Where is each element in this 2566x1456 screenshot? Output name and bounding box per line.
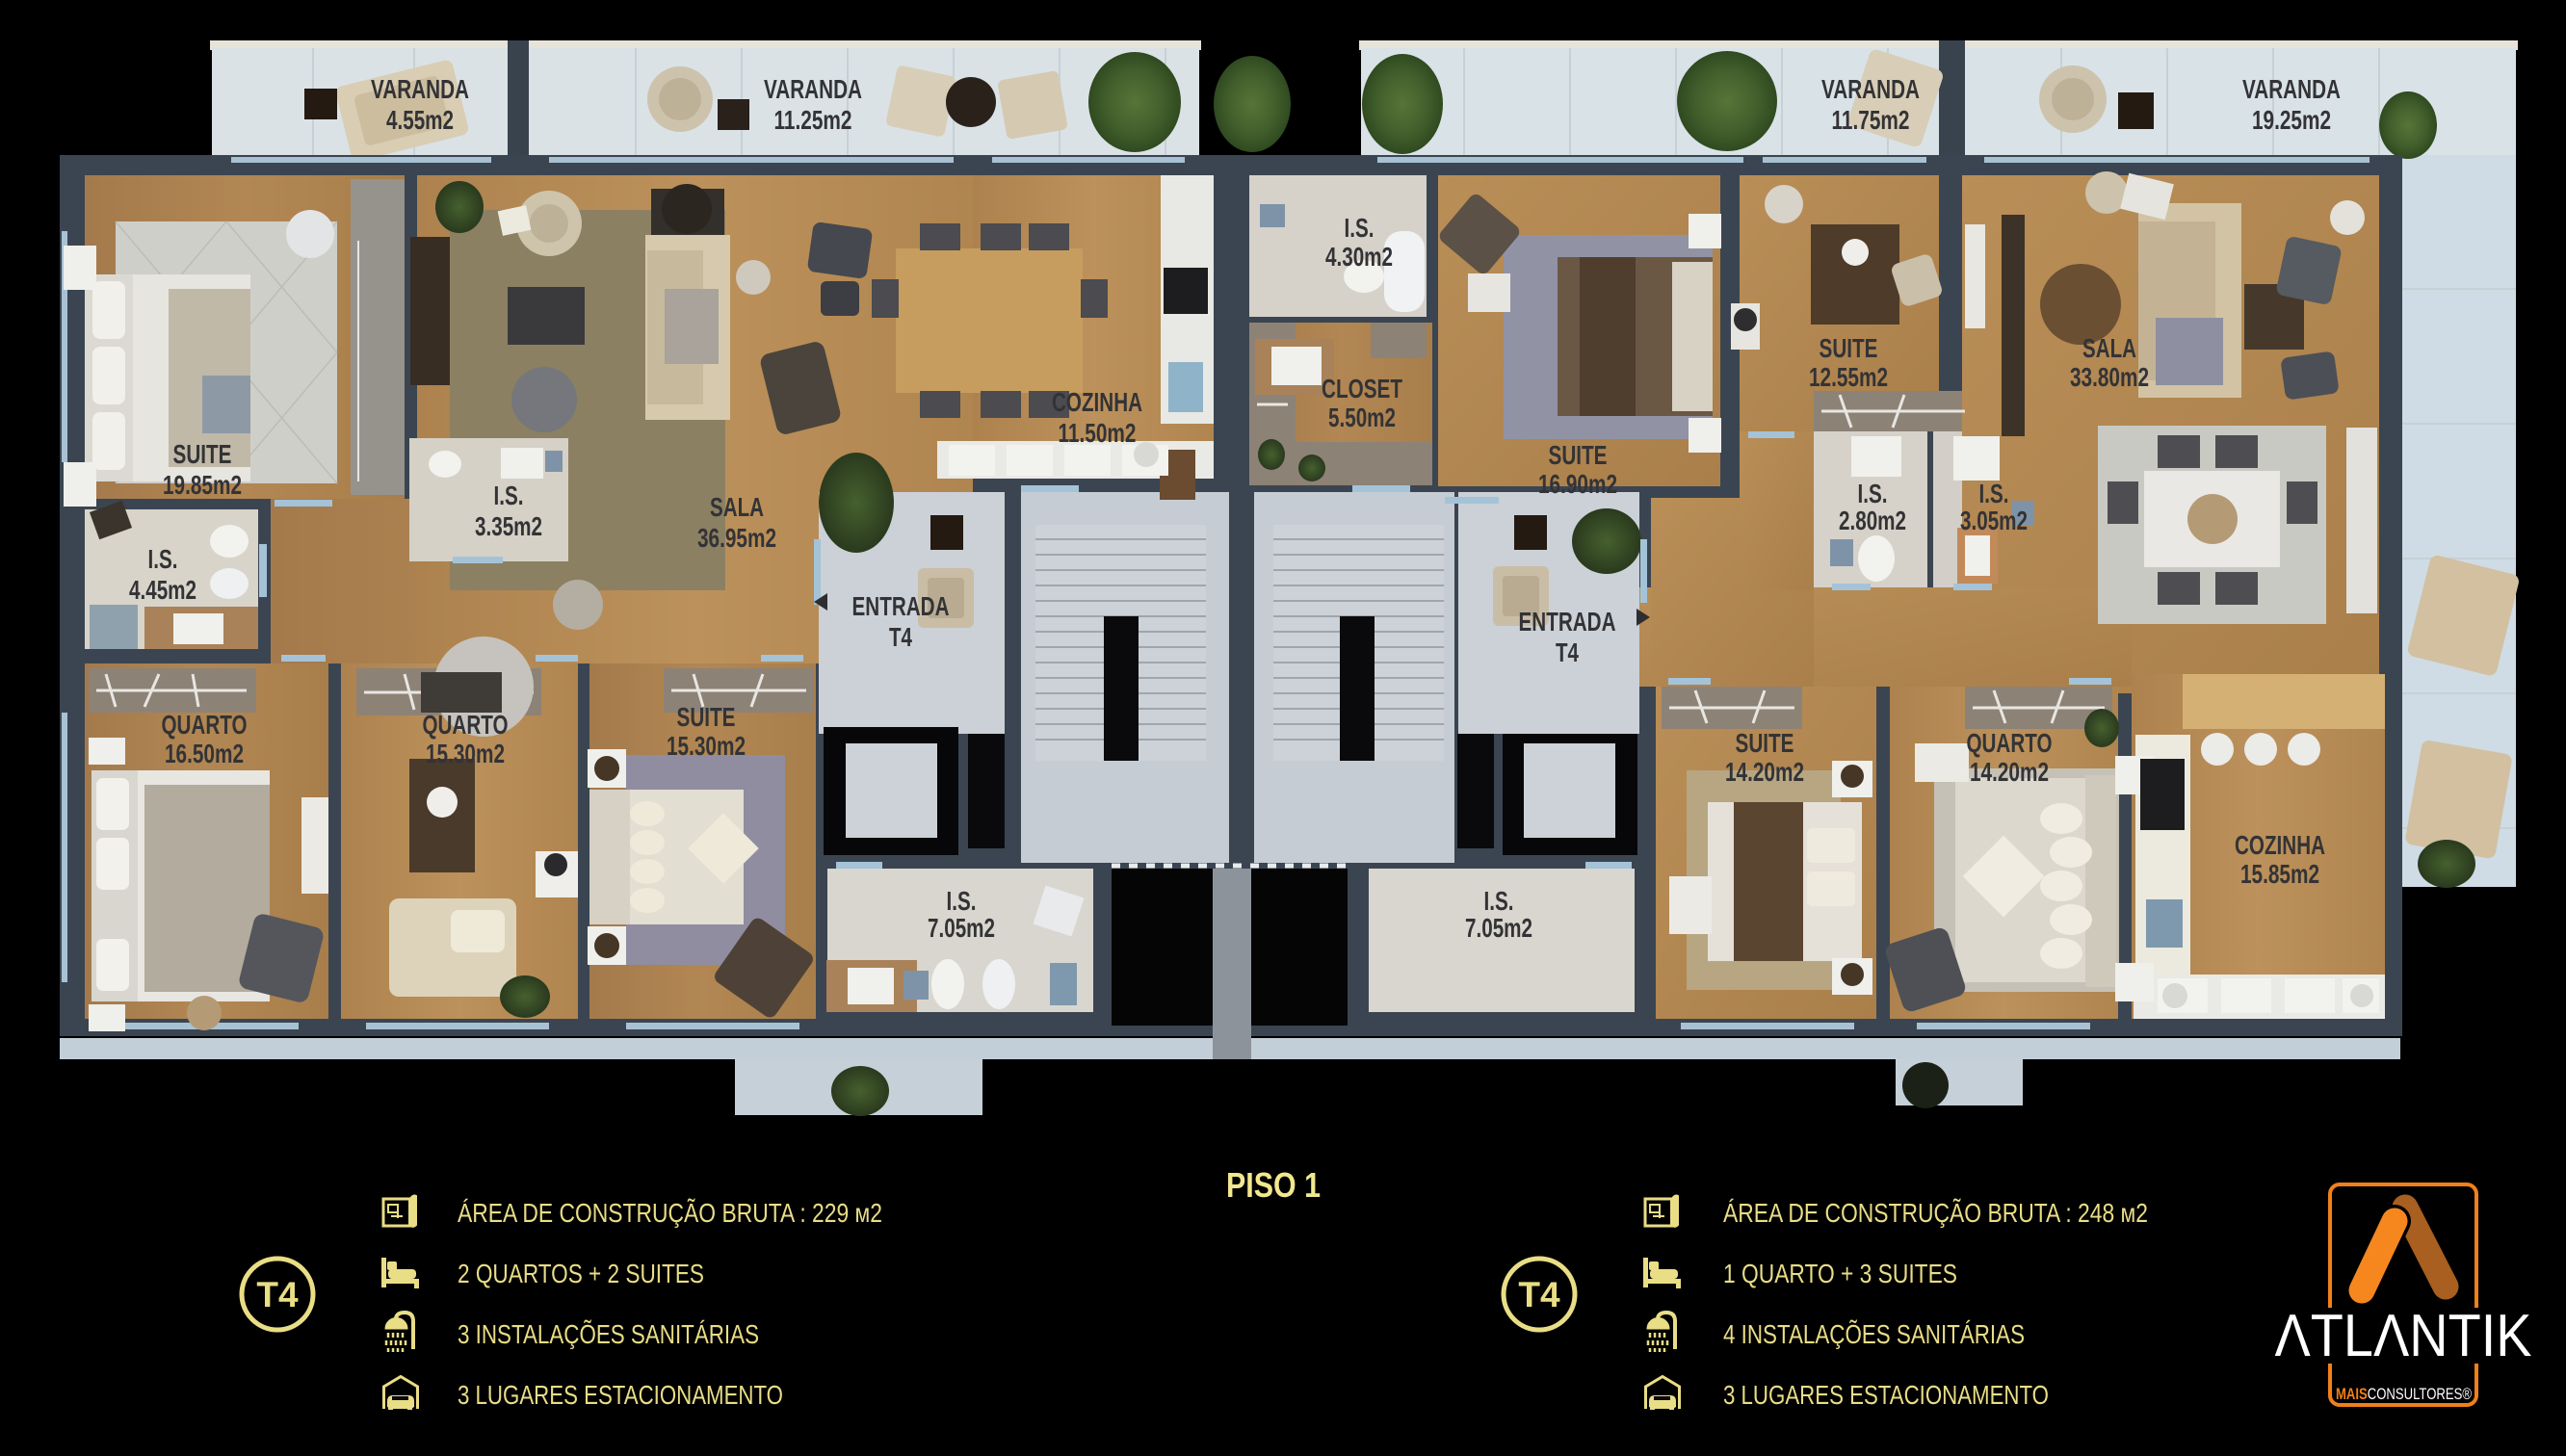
svg-text:T4: T4 bbox=[1556, 637, 1579, 667]
svg-text:I.S.: I.S. bbox=[1979, 479, 2009, 508]
svg-text:14.20m2: 14.20m2 bbox=[1725, 757, 1804, 787]
svg-text:COZINHA: COZINHA bbox=[1052, 387, 1142, 417]
svg-text:I.S.: I.S. bbox=[1484, 886, 1514, 916]
svg-text:12.55m2: 12.55m2 bbox=[1809, 362, 1888, 392]
svg-text:33.80m2: 33.80m2 bbox=[2070, 362, 2149, 392]
svg-text:4 INSTALAÇÕES SANITÁRIAS: 4 INSTALAÇÕES SANITÁRIAS bbox=[1723, 1319, 2025, 1349]
svg-text:15.85m2: 15.85m2 bbox=[2240, 859, 2319, 889]
svg-text:PISO 1: PISO 1 bbox=[1226, 1165, 1321, 1205]
svg-text:36.95m2: 36.95m2 bbox=[697, 523, 776, 553]
svg-text:QUARTO: QUARTO bbox=[1967, 728, 2053, 758]
svg-text:QUARTO: QUARTO bbox=[423, 710, 509, 740]
svg-text:5.50m2: 5.50m2 bbox=[1328, 403, 1396, 432]
svg-text:ÁREA DE CONSTRUÇÃO BRUTA : 22: ÁREA DE CONSTRUÇÃO BRUTA : 229 м2 bbox=[458, 1198, 882, 1228]
svg-text:16.90m2: 16.90m2 bbox=[1538, 469, 1617, 499]
svg-text:2 QUARTOS + 2 SUITES: 2 QUARTOS + 2 SUITES bbox=[458, 1259, 704, 1288]
svg-text:11.50m2: 11.50m2 bbox=[1059, 418, 1137, 448]
svg-text:16.50m2: 16.50m2 bbox=[165, 739, 244, 768]
svg-text:QUARTO: QUARTO bbox=[162, 710, 248, 740]
svg-text:15.30m2: 15.30m2 bbox=[426, 739, 505, 768]
svg-text:VARANDA: VARANDA bbox=[1821, 74, 1920, 104]
svg-text:15.30m2: 15.30m2 bbox=[667, 731, 746, 761]
svg-text:3 LUGARES ESTACIONAMENTO: 3 LUGARES ESTACIONAMENTO bbox=[458, 1380, 783, 1410]
svg-text:3 INSTALAÇÕES SANITÁRIAS: 3 INSTALAÇÕES SANITÁRIAS bbox=[458, 1319, 759, 1349]
svg-text:I.S.: I.S. bbox=[947, 886, 977, 916]
svg-text:VARANDA: VARANDA bbox=[371, 74, 469, 104]
svg-text:19.85m2: 19.85m2 bbox=[163, 470, 242, 500]
svg-text:I.S.: I.S. bbox=[1345, 213, 1375, 243]
svg-text:19.25m2: 19.25m2 bbox=[2252, 105, 2331, 135]
svg-text:3.05m2: 3.05m2 bbox=[1960, 506, 2028, 535]
svg-text:11.75m2: 11.75m2 bbox=[1832, 105, 1910, 135]
svg-text:SUITE: SUITE bbox=[1549, 440, 1608, 470]
svg-text:2.80m2: 2.80m2 bbox=[1839, 506, 1906, 535]
svg-text:SUITE: SUITE bbox=[1736, 728, 1794, 758]
svg-text:T4: T4 bbox=[889, 622, 912, 652]
svg-text:I.S.: I.S. bbox=[148, 544, 178, 574]
svg-text:4.55m2: 4.55m2 bbox=[386, 105, 454, 135]
svg-text:11.25m2: 11.25m2 bbox=[774, 105, 852, 135]
svg-text:4.45m2: 4.45m2 bbox=[129, 575, 196, 605]
svg-text:CLOSET: CLOSET bbox=[1322, 374, 1402, 403]
svg-text:VARANDA: VARANDA bbox=[2242, 74, 2341, 104]
svg-text:ENTRADA: ENTRADA bbox=[852, 591, 950, 621]
svg-text:SUITE: SUITE bbox=[1820, 333, 1878, 363]
svg-text:COZINHA: COZINHA bbox=[2235, 830, 2325, 860]
svg-text:4.30m2: 4.30m2 bbox=[1325, 242, 1393, 272]
svg-text:ÁREA DE CONSTRUÇÃO BRUTA : 24: ÁREA DE CONSTRUÇÃO BRUTA : 248 м2 bbox=[1723, 1198, 2148, 1228]
svg-text:ENTRADA: ENTRADA bbox=[1519, 607, 1616, 637]
svg-text:14.20m2: 14.20m2 bbox=[1970, 757, 2049, 787]
svg-text:SUITE: SUITE bbox=[173, 439, 232, 469]
svg-text:7.05m2: 7.05m2 bbox=[928, 913, 995, 943]
svg-text:T4: T4 bbox=[256, 1275, 299, 1314]
svg-text:SALA: SALA bbox=[710, 492, 764, 522]
svg-text:ΛTLΛNTIK: ΛTLΛNTIK bbox=[2275, 1303, 2532, 1369]
svg-text:VARANDA: VARANDA bbox=[764, 74, 862, 104]
svg-text:SALA: SALA bbox=[2082, 333, 2136, 363]
svg-text:MAISCONSULTORES®: MAISCONSULTORES® bbox=[2336, 1385, 2472, 1403]
svg-text:3.35m2: 3.35m2 bbox=[475, 511, 542, 541]
svg-text:1 QUARTO + 3 SUITES: 1 QUARTO + 3 SUITES bbox=[1723, 1259, 1957, 1288]
svg-text:3 LUGARES ESTACIONAMENTO: 3 LUGARES ESTACIONAMENTO bbox=[1723, 1380, 2049, 1410]
svg-text:SUITE: SUITE bbox=[677, 702, 736, 732]
svg-text:T4: T4 bbox=[1518, 1275, 1560, 1314]
svg-text:7.05m2: 7.05m2 bbox=[1465, 913, 1532, 943]
svg-text:I.S.: I.S. bbox=[494, 481, 524, 510]
svg-text:I.S.: I.S. bbox=[1858, 479, 1888, 508]
